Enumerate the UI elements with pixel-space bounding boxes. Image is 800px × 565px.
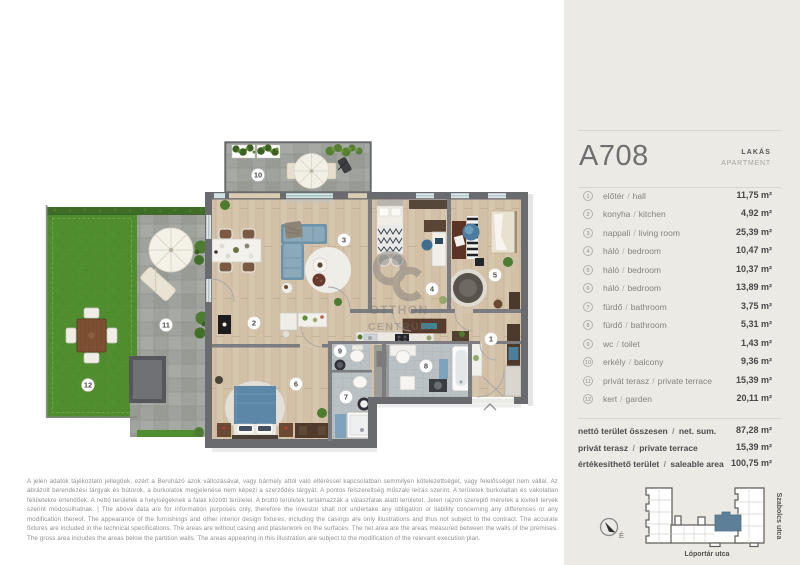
- svg-text:11: 11: [162, 321, 170, 330]
- svg-text:5: 5: [493, 271, 497, 280]
- svg-text:É: É: [619, 531, 624, 540]
- svg-text:1: 1: [489, 335, 493, 344]
- svg-text:Lóportár utca: Lóportár utca: [684, 551, 729, 558]
- svg-text:6: 6: [294, 380, 298, 389]
- svg-text:3: 3: [342, 236, 346, 245]
- svg-text:CENTRUM: CENTRUM: [368, 321, 430, 333]
- svg-text:12: 12: [84, 381, 92, 390]
- svg-text:8: 8: [424, 362, 428, 371]
- svg-text:2: 2: [252, 319, 256, 328]
- svg-text:9: 9: [338, 347, 342, 356]
- svg-text:OTTHON: OTTHON: [369, 303, 428, 317]
- svg-text:10: 10: [254, 171, 262, 180]
- svg-text:7: 7: [344, 393, 348, 402]
- svg-text:Szabolcs utca: Szabolcs utca: [775, 493, 782, 540]
